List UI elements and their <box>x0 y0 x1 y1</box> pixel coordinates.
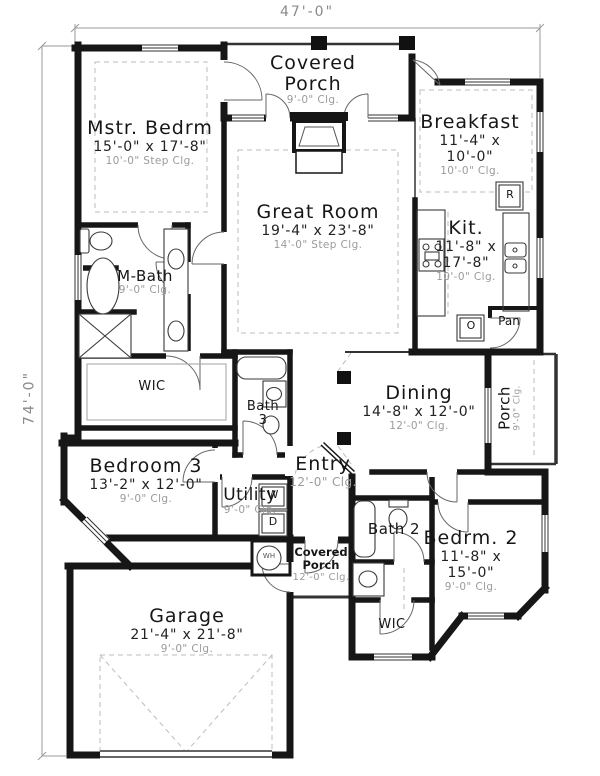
tub-bath3 <box>237 357 286 379</box>
room-label-breakfast: Breakfast 11'-4" x 10'-0" 10'-0" Clg. <box>420 112 519 177</box>
toilet-mbath <box>80 229 89 253</box>
room-label-pantry: Pan <box>498 315 520 328</box>
dimension-width-label: 47'-0" <box>280 5 334 20</box>
room-label-porch-right: Porch 9'-0" Clg. <box>497 385 524 431</box>
toilet-bath2 <box>389 500 408 507</box>
room-label-wic-master: WIC <box>138 380 165 394</box>
dimension-depth-label: 74'-0" <box>22 371 37 425</box>
fireplace <box>290 112 348 173</box>
oven-label: O <box>467 320 476 332</box>
covered-porch-top-name: Covered <box>270 53 356 74</box>
dryer-label: D <box>269 516 277 528</box>
room-label-garage: Garage 21'-4" x 21'-8" 9'-0" Clg. <box>130 606 243 655</box>
water-heater-label: WH <box>263 553 275 561</box>
room-label-dining: Dining 14'-8" x 12'-0" 12'-0" Clg. <box>362 383 475 432</box>
room-label-mstr-bedrm: Mstr. Bedrm 15'-0" x 17'-8" 10'-0" Step … <box>87 118 213 167</box>
room-label-entry: Entry 12'-0" Clg. <box>289 454 356 488</box>
room-label-wic-bedrm2: WIC <box>378 618 405 632</box>
refrigerator-label: R <box>506 189 514 201</box>
room-label-bath3: Bath 3 <box>247 400 279 428</box>
room-label-m-bath: M-Bath 9'-0" Clg. <box>117 268 173 297</box>
floor-plan: 47'-0" 74'-0" Covered Porch 9'-0" Clg. M… <box>0 0 600 776</box>
room-label-bath2: Bath 2 <box>368 521 420 537</box>
room-label-bedroom3: Bedroom 3 13'-2" x 12'-0" 9'-0" Clg. <box>89 456 202 505</box>
room-label-great-room: Great Room 19'-4" x 23'-8" 14'-0" Step C… <box>256 202 379 251</box>
room-label-covered-porch-top: Covered Porch 9'-0" Clg. <box>270 53 356 106</box>
tub-mbath <box>87 258 119 314</box>
washer-label: W <box>268 489 279 501</box>
room-label-covered-porch-bottom: Covered Porch 12'-0" Clg. <box>293 546 350 584</box>
room-label-bedrm2: Bedrm. 2 11'-8" x 15'-0" 9'-0" Clg. <box>424 528 519 593</box>
room-label-kitchen: Kit. 11'-8" x 17'-8" 10'-0" Clg. <box>435 218 496 283</box>
